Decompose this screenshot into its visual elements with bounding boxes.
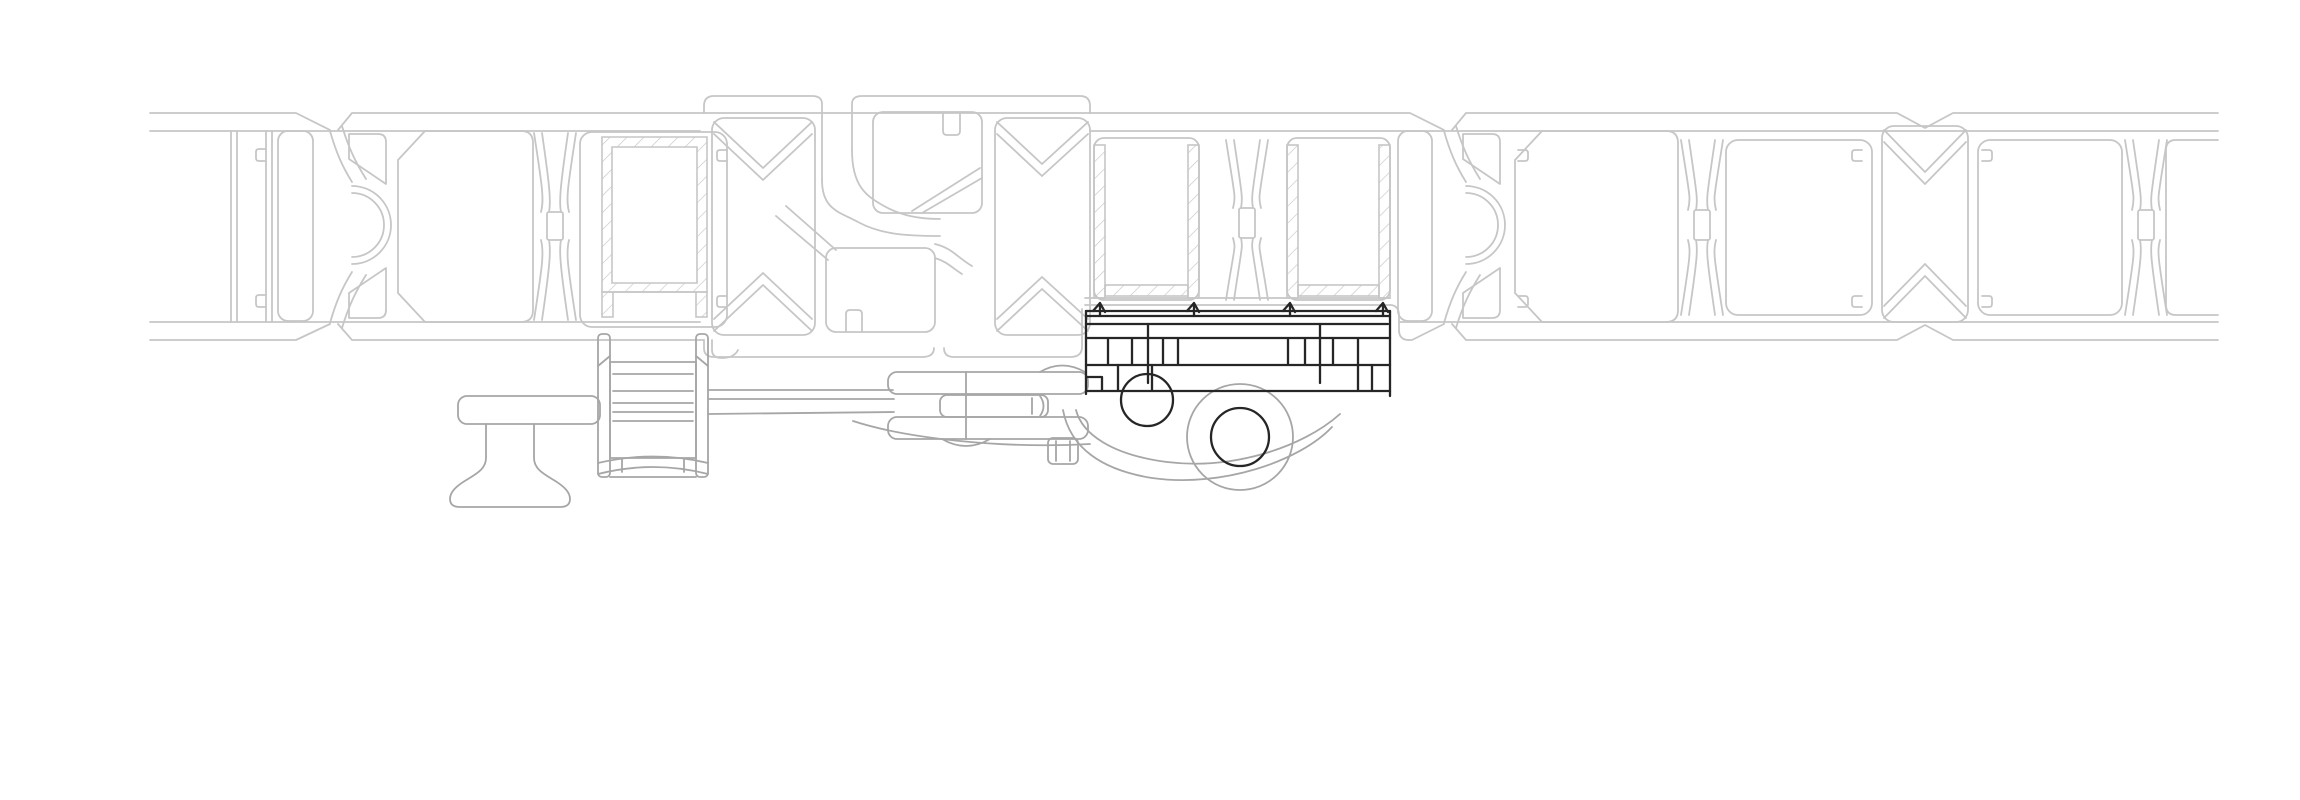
raised-cap-right — [852, 96, 1090, 150]
step-s-channel — [822, 150, 940, 236]
carriage-top-bar — [1086, 311, 1390, 316]
frame-chambers-left — [398, 131, 727, 327]
steel-leg-right — [696, 292, 707, 317]
knob-stem-foot — [450, 424, 570, 507]
gasket-chamber — [278, 131, 313, 321]
gasket-block-bottom-right — [1463, 268, 1500, 318]
steel-wall-4 — [1379, 145, 1390, 298]
steel-wall-3 — [1287, 145, 1298, 298]
band-outer-top-right — [1090, 113, 2218, 130]
hook-tabs-steel-wall — [717, 150, 727, 307]
support-arm — [1063, 384, 1340, 490]
meeting-stile — [704, 96, 1090, 358]
upper-chamber-slot — [943, 112, 960, 135]
sash-profile-with-rollers — [1085, 113, 2218, 340]
gasket-junction-right — [1398, 126, 1505, 328]
block-ribs — [613, 374, 693, 421]
band-outer-bottom-right — [1409, 324, 2218, 340]
stile-j-hook — [712, 340, 738, 358]
hinge-pivot — [853, 366, 1090, 465]
hourglass-strut-1 — [534, 133, 576, 320]
band-outer-top-left — [150, 113, 704, 130]
upper-square-chamber — [873, 112, 982, 213]
steel-leg-left — [602, 292, 613, 317]
v-strut-chamber-2 — [995, 118, 1090, 335]
hook-tabs-c6 — [1852, 150, 1862, 307]
steel-wall-1 — [1094, 145, 1105, 298]
technical-drawing-canvas — [0, 0, 2300, 800]
steel-reinforcement-hatch — [602, 137, 707, 292]
gasket-chamber-right — [1398, 131, 1432, 321]
gasket-bulb — [352, 186, 391, 264]
hinge-bracket — [1032, 396, 1044, 416]
v-strut-chamber-right — [1882, 126, 1968, 322]
roller-wheel-large — [1211, 408, 1269, 466]
gasket-junction-left — [278, 126, 391, 328]
linkage-arm — [708, 390, 894, 414]
block-arc-clip — [598, 457, 708, 478]
carriage-fixing-pins — [1148, 324, 1320, 383]
carriage-upper-band — [1086, 338, 1390, 365]
chamfered-chamber — [398, 131, 533, 322]
hinge-foot-ribs — [1056, 441, 1070, 461]
open-end-chamber-right — [2166, 140, 2218, 315]
gasket-channel-bottom — [330, 272, 366, 328]
adjustment-block — [598, 334, 708, 477]
open-chamber-right-2 — [1978, 140, 2122, 315]
hourglass-strut-3 — [2125, 140, 2167, 315]
hinge-bulge-top — [1040, 366, 1085, 373]
block-body — [610, 362, 696, 458]
swing-arm-curves — [1063, 410, 1340, 480]
sash-bottom-lines — [1085, 298, 1390, 305]
hourglass-center-box-1 — [547, 212, 563, 240]
hinge-plate-upper — [888, 372, 1088, 394]
v-strut-right-bottom — [1884, 264, 1966, 318]
v-strut-1-top — [714, 122, 812, 180]
v-strut-1-bottom — [714, 273, 812, 331]
hourglass-strut-2 — [1681, 140, 1723, 315]
lower-chamber-slot — [846, 310, 862, 332]
hook-tabs-c5 — [1518, 150, 1528, 307]
stile-deep-bottom — [704, 309, 1082, 357]
lower-square-chamber — [826, 248, 935, 332]
gasket-bulb-right — [1466, 186, 1505, 264]
v-strut-2-bottom — [997, 277, 1088, 331]
hook-tabs-c7 — [1982, 150, 1992, 307]
upper-chamber-diagonal — [912, 168, 982, 213]
gasket-block-bottom — [349, 268, 386, 318]
steel-floor-b — [1298, 285, 1379, 296]
hook-tabs-left — [256, 149, 266, 307]
handle-knob — [450, 396, 600, 507]
frame-profile-right — [1400, 126, 2218, 340]
knob-bar — [458, 396, 600, 424]
arm-lines — [708, 390, 894, 414]
chamber-divider-walls — [231, 131, 272, 322]
sash-chamber-a — [1094, 138, 1199, 300]
open-chamber-right-1 — [1726, 140, 1872, 315]
v-strut-2-top — [997, 122, 1088, 176]
hinge-foot — [1048, 438, 1078, 464]
sash-chamber-b — [1287, 138, 1390, 300]
hourglass-strut-sash — [1226, 140, 1268, 300]
chamfered-chamber-right — [1515, 131, 1678, 322]
gasket-channel-bottom-right — [1444, 272, 1480, 328]
block-chamfers — [598, 356, 708, 366]
hourglass-center-box-2 — [1694, 210, 1710, 240]
hourglass-center-box-sash — [1239, 208, 1255, 238]
lower-s-channel — [935, 244, 972, 274]
steel-floor-a — [1105, 285, 1188, 296]
v-strut-right-top — [1884, 130, 1966, 184]
hourglass-center-box-3 — [2138, 210, 2154, 240]
steel-wall-2 — [1188, 145, 1199, 298]
